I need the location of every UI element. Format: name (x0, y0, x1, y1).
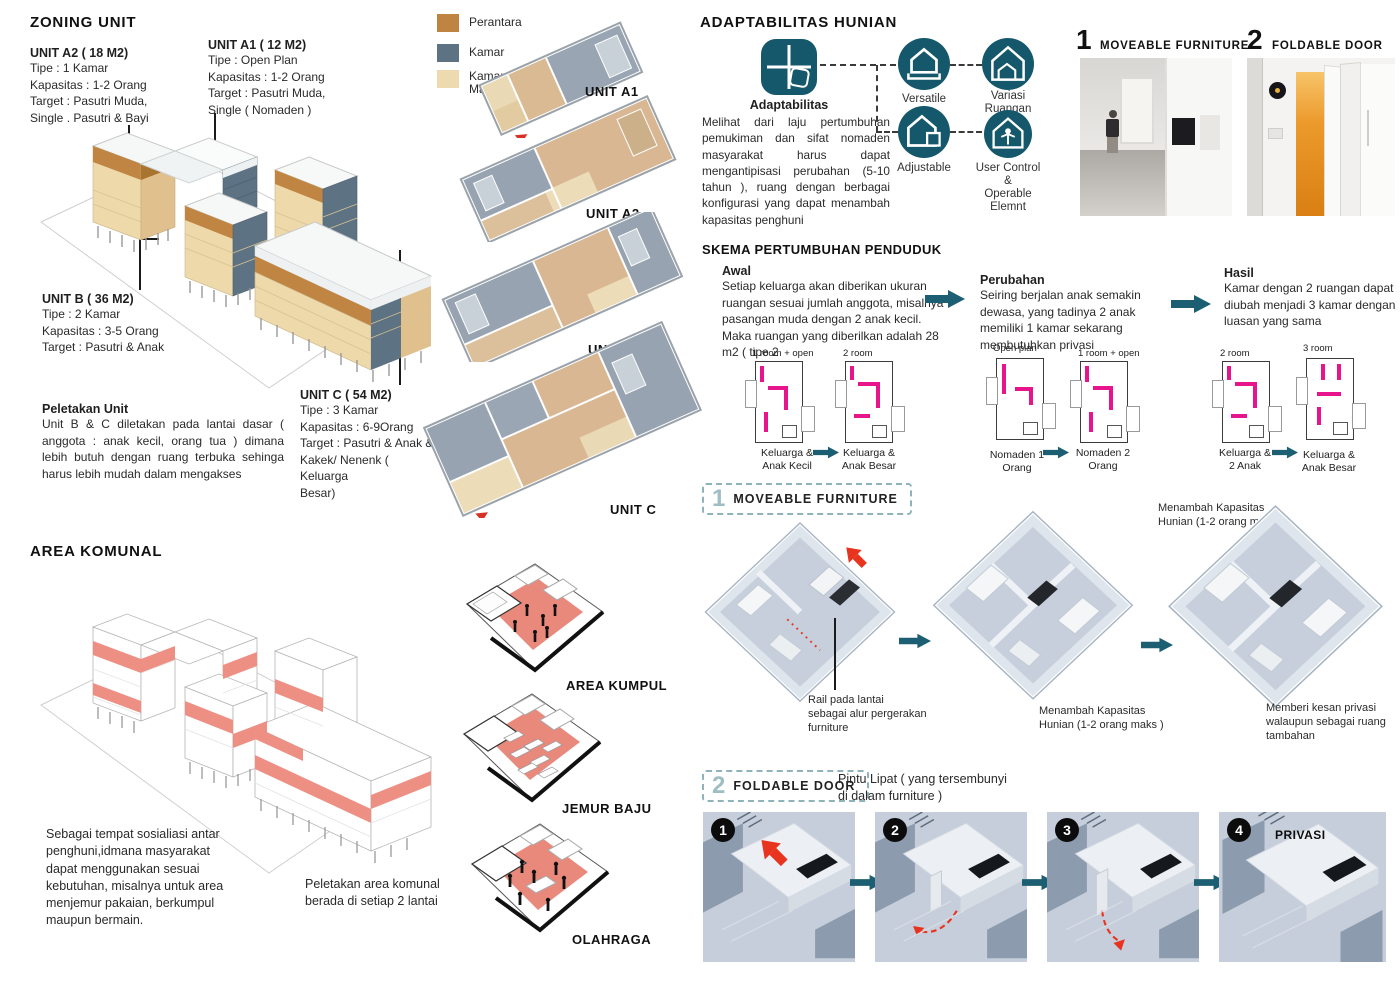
awal-heading: Awal (722, 264, 947, 278)
skema-title: SKEMA PERTUMBUHAN PENDUDUK (702, 242, 942, 257)
unit-a2-name: UNIT A2 ( 18 M2) (30, 46, 200, 60)
komunal-note: Peletakan area komunal berada di setiap … (305, 876, 465, 911)
variasi-ruangan-icon (982, 38, 1034, 90)
mini-plan-type: 1 room + open (1078, 348, 1140, 359)
photo-right-door (1360, 64, 1395, 216)
photo2-number: 2 (1247, 26, 1263, 54)
moveable-caption-1: Rail pada lantai sebagai alur pergerakan… (808, 694, 958, 735)
peletakan-desc: Unit B & C diletakan pada lantai dasar (… (42, 416, 284, 482)
foldable-step-panel-1: 1 (703, 812, 855, 962)
mini-plan-caption: Nomaden 2 Orang (1064, 447, 1142, 472)
unit-c-info: UNIT C ( 54 M2) Tipe : 3 Kamar Kapasitas… (300, 388, 440, 501)
unit-a1-name: UNIT A1 ( 12 M2) (208, 38, 378, 52)
moveable-caption-2: Menambah Kapasitas Hunian (1-2 orang mak… (1039, 705, 1189, 733)
unit-b-info: UNIT B ( 36 M2) Tipe : 2 Kamar Kapasitas… (42, 292, 222, 356)
adjustable-icon (898, 106, 950, 158)
unit-a1-info: UNIT A1 ( 12 M2) Tipe : Open Plan Kapasi… (208, 38, 378, 118)
moveable-furniture-photo (1080, 58, 1232, 216)
foldable-step-panel-3: 3 (1047, 812, 1199, 962)
photo1-title: MOVEABLE FURNITURE (1100, 40, 1249, 52)
unit-a2-desc: Tipe : 1 Kamar Kapasitas : 1-2 Orang Tar… (30, 60, 200, 126)
user-control-icon (984, 110, 1032, 158)
step-number-badge: 4 (1227, 818, 1251, 842)
moveable-section-header: 1 MOVEABLE FURNITURE (702, 483, 912, 515)
photo-floor (1080, 150, 1168, 216)
photo-clock (1269, 82, 1286, 99)
connector (820, 64, 896, 66)
photo-window (1120, 77, 1154, 144)
olahraga-diagram (460, 816, 620, 938)
mini-plan-caption: Keluarga & Anak Besar (830, 447, 908, 472)
mini-plan-caption: Keluarga & Anak Besar (1290, 449, 1368, 474)
mini-floorplan (755, 361, 803, 443)
unit-a1-desc: Tipe : Open Plan Kapasitas : 1-2 Orang T… (208, 52, 378, 118)
unit-c-desc: Tipe : 3 Kamar Kapasitas : 6-9Orang Targ… (300, 402, 440, 501)
caption-leader-line (834, 618, 836, 690)
versatile-label: Versatile (880, 93, 968, 106)
peletakan-title: Peletakan Unit (42, 402, 284, 416)
foldable-number: 2 (712, 774, 725, 798)
photo2-title: FOLDABLE DOOR (1272, 40, 1383, 52)
mini-floorplan (1222, 361, 1270, 443)
perubahan-heading: Perubahan (980, 273, 1175, 287)
zoning-title: ZONING UNIT (30, 14, 136, 31)
adaptabilitas-hub-label: Adaptabilitas (729, 98, 849, 112)
connector (876, 131, 898, 133)
photo-folded-door-panel (1340, 62, 1361, 216)
jemur-baju-diagram (452, 686, 612, 808)
foldable-step-panel-4: 4 PRIVASI (1219, 812, 1386, 962)
mini-floorplan (1306, 358, 1354, 440)
mini-floorplan (1080, 361, 1128, 443)
area-kumpul-diagram (455, 556, 615, 678)
arrow-right-icon (899, 632, 931, 650)
skema-stage-hasil: Hasil Kamar dengan 2 ruangan dapat diuba… (1224, 266, 1396, 330)
plan-label-jemur-baju: JEMUR BAJU (562, 801, 652, 816)
step-number-badge: 2 (883, 818, 907, 842)
moveable-caption-3: Memberi kesan privasi walaupun sebagai r… (1266, 702, 1400, 743)
step-number-badge: 1 (711, 818, 735, 842)
photo1-number: 1 (1076, 26, 1092, 54)
unit-b-desc: Tipe : 2 Kamar Kapasitas : 3-5 Orang Tar… (42, 306, 222, 356)
mini-plan-type: Open plan (993, 343, 1037, 354)
unit-a2-info: UNIT A2 ( 18 M2) Tipe : 1 Kamar Kapasita… (30, 46, 200, 126)
moveable-room-diagram-1 (700, 515, 900, 720)
hasil-desc: Kamar dengan 2 ruangan dapat diubah menj… (1224, 280, 1396, 330)
adaptabilitas-hub-icon (760, 38, 818, 96)
connector (876, 65, 878, 132)
foldable-step-panel-2: 2 (875, 812, 1027, 962)
unit-b-name: UNIT B ( 36 M2) (42, 292, 222, 306)
unit-c-floorplan (422, 318, 702, 518)
photo-tv (1172, 118, 1195, 145)
photo-cabinet-wall (1165, 58, 1232, 216)
unit-c-name: UNIT C ( 54 M2) (300, 388, 440, 402)
moveable-title: MOVEABLE FURNITURE (733, 492, 898, 506)
user-control-label: User Control & Operable Elemnt (956, 162, 1060, 214)
adaptabilitas-desc: Melihat dari laju pertumbuhan pemukiman … (702, 114, 890, 228)
hasil-heading: Hasil (1224, 266, 1396, 280)
adaptabilitas-title: ADAPTABILITAS HUNIAN (700, 14, 897, 31)
versatile-icon (898, 38, 950, 90)
skema-stage-awal: Awal Setiap keluarga akan diberikan ukur… (722, 264, 947, 361)
komunal-desc: Sebagai tempat sosialiasi antar penghuni… (46, 826, 286, 930)
komunal-title: AREA KOMUNAL (30, 543, 162, 560)
plan-label-olahraga: OLAHRAGA (572, 932, 651, 947)
moveable-room-diagram-3 (1158, 500, 1393, 725)
moveable-number: 1 (712, 487, 725, 511)
plan-label-unit-c: UNIT C (610, 502, 656, 517)
mini-plan-type: 3 room (1303, 343, 1333, 354)
photo-switch (1268, 128, 1283, 139)
mini-plan-type: 2 room (843, 348, 873, 359)
photo-shelf (1200, 115, 1220, 150)
foldable-subtitle: Pintu Lipat ( yang tersembunyi di dalam … (838, 771, 1058, 806)
connector (950, 131, 982, 133)
mini-plan-type: 2 room (1220, 348, 1250, 359)
mini-floorplan (845, 361, 893, 443)
foldable-door-photo (1247, 58, 1395, 216)
arrow-right-icon (1171, 295, 1211, 313)
presentation-board: ZONING UNIT UNIT A2 ( 18 M2) Tipe : 1 Ka… (0, 0, 1400, 990)
privasi-label: PRIVASI (1275, 828, 1326, 842)
mini-plan-type: 1 room + open (752, 348, 814, 359)
photo-left-wall (1247, 58, 1263, 216)
step-number-badge: 3 (1055, 818, 1079, 842)
mini-floorplan (996, 358, 1044, 440)
moveable-room-diagram-2 (928, 505, 1138, 717)
person-silhouette (1106, 110, 1120, 154)
skema-stage-perubahan: Perubahan Seiring berjalan anak semakin … (980, 273, 1175, 353)
arrow-right-icon (925, 290, 965, 308)
peletakan-unit-block: Peletakan Unit Unit B & C diletakan pada… (42, 402, 284, 482)
connector (950, 64, 982, 66)
